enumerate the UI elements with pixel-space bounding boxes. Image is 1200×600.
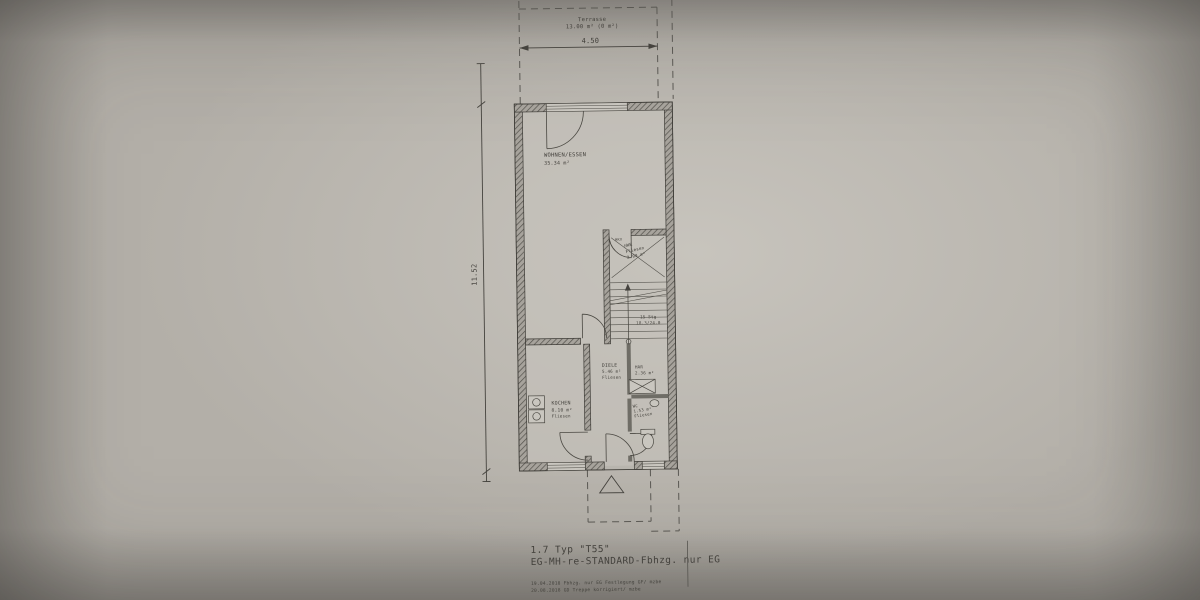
wc-window xyxy=(642,461,664,469)
wall-hwr-top xyxy=(631,229,666,235)
shaft-box xyxy=(629,379,655,393)
wall-bottom-c xyxy=(634,461,642,469)
dimension-width: 4.50 xyxy=(519,36,657,51)
dimension-height-label: 11.52 xyxy=(470,264,478,286)
stair-ratio-label: 18.3/24.0 xyxy=(636,320,661,325)
porch-outline-bottom xyxy=(588,521,651,522)
har-name: HAR xyxy=(635,364,644,369)
har-area: 2.36 m² xyxy=(635,370,654,375)
dimension-arrow-right-icon xyxy=(648,43,657,49)
wall-bottom-b xyxy=(585,462,604,470)
entrance-triangle-icon xyxy=(599,476,623,493)
wall-kitchen-diele xyxy=(584,344,591,430)
property-line-top-right xyxy=(672,0,673,99)
dimension-arrow-left-icon xyxy=(519,45,528,51)
living-area: 35.34 m² xyxy=(544,160,570,166)
terrace-boundary-right xyxy=(657,7,658,102)
toilet-icon xyxy=(642,434,653,449)
title-block: 1.7 Typ "T55" EG-MH-re-STANDARD-Fbhzg. n… xyxy=(530,540,720,594)
terrace-window xyxy=(546,103,627,112)
terrace-boundary-top xyxy=(519,7,657,9)
terrace-boundary-left xyxy=(519,1,520,104)
dimension-height-line xyxy=(481,64,487,482)
wall-bottom-a xyxy=(519,463,547,471)
diele-area: 5.46 m² xyxy=(602,369,621,374)
terrace-name: Terrasse xyxy=(578,17,606,23)
kitchen-floor: Fliesen xyxy=(552,413,571,418)
title-line-1: 1.7 Typ "T55" xyxy=(530,544,610,556)
wall-top-right xyxy=(627,102,672,111)
terrace-area: 13.00 m² (0 m²) xyxy=(566,23,619,31)
property-line-bottom-right xyxy=(678,469,679,531)
title-block-divider xyxy=(687,541,688,587)
wall-diele-wc xyxy=(627,399,631,432)
wall-har-wc xyxy=(631,394,668,399)
wall-bottom-d xyxy=(664,461,677,469)
kitchen-window xyxy=(547,462,585,471)
wall-diele-wc-stub xyxy=(628,456,632,462)
room-label-kitchen: KOCHEN 8.10 m² Fliesen xyxy=(551,400,572,418)
living-name: WOHNEN/ESSEN xyxy=(544,152,586,159)
floor-plan-svg: Terrasse 13.00 m² (0 m²) 4.50 11.52 xyxy=(0,0,1200,600)
floor-plan-photo: Terrasse 13.00 m² (0 m²) 4.50 11.52 xyxy=(0,0,1200,600)
stair-count-label: 15 Stg xyxy=(640,314,657,319)
terrace-label: Terrasse 13.00 m² (0 m²) xyxy=(566,17,619,31)
kitchen-sink-bowl-icon xyxy=(533,398,541,406)
dimension-width-label: 4.50 xyxy=(581,37,599,45)
revision-entry-1: 19.04.2018 Fbhzg. nur EG Festlegung GF/ … xyxy=(531,579,662,587)
porch-outline-right xyxy=(650,469,651,521)
dimension-height: 11.52 xyxy=(468,64,491,482)
dimension-width-line xyxy=(519,46,657,48)
sink-icon xyxy=(650,400,659,407)
title-line-2: EG-MH-re-STANDARD-Fbhzg. nur EG xyxy=(531,554,721,568)
diele-floor: Fliesen xyxy=(602,375,621,380)
kitchen-name: KOCHEN xyxy=(551,400,570,406)
wall-kitchen-diele-stub xyxy=(585,456,591,462)
wall-top-left xyxy=(514,104,546,112)
revision-entry-2: 20.08.2018 GD Treppe korrigiert/ mzbe xyxy=(531,586,641,594)
wall-living-kitchen xyxy=(526,338,581,345)
hwr-note-label: HKV xyxy=(615,238,623,242)
kitchen-burner-icon xyxy=(533,412,541,420)
porch-outline-left xyxy=(587,470,588,522)
